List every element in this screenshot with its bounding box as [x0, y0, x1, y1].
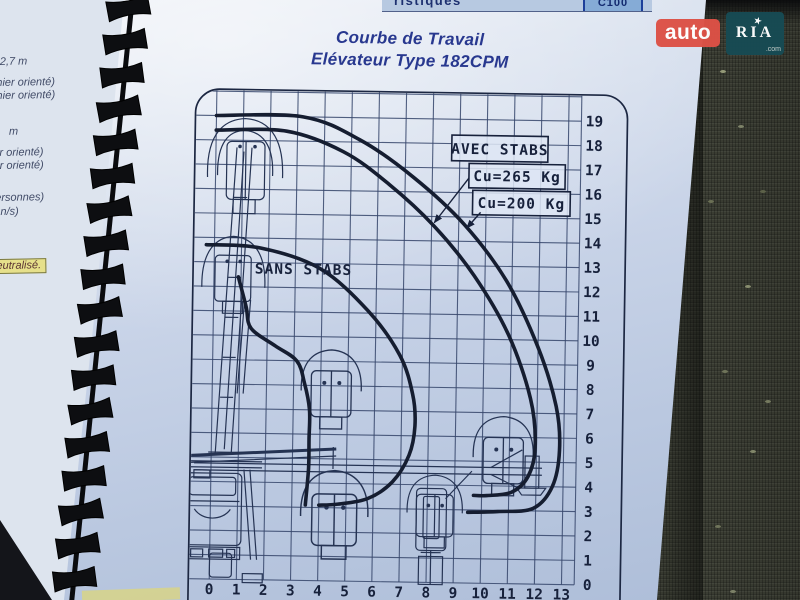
x-tick-label: 10: [471, 586, 489, 600]
left-page-text-fragment: 2,7 m: [0, 56, 27, 67]
grid-line-horizontal: [192, 310, 578, 316]
grid-line-horizontal: [191, 408, 577, 414]
y-tick-label: 4: [584, 480, 593, 496]
x-tick-label: 7: [394, 585, 403, 600]
grid-line-vertical: [426, 90, 434, 583]
turret-drawing: [415, 470, 472, 585]
grid-line-vertical: [574, 92, 582, 585]
grid-line-horizontal: [188, 579, 574, 585]
y-tick-label: 8: [586, 383, 595, 399]
x-tick-label: 4: [313, 584, 322, 600]
y-tick-label: 1: [583, 554, 592, 570]
y-tick-label: 3: [584, 505, 593, 521]
x-tick-label: 6: [367, 585, 376, 600]
basket-top: [207, 118, 284, 214]
highlighted-text-sliver: [82, 587, 180, 600]
grid-line-horizontal: [189, 530, 575, 536]
x-tick-label: 12: [525, 587, 543, 600]
left-page-text-fragment: n/s): [0, 207, 19, 218]
left-page-text-fragment: anier orienté): [0, 77, 55, 89]
y-tick-label: 9: [586, 358, 595, 374]
y-tick-label: 11: [583, 309, 601, 325]
x-tick-label: 2: [259, 583, 268, 599]
y-tick-label: 0: [583, 578, 592, 594]
photographed-manual-page: 2,7 manier orienté)anier orienté)mer ori…: [0, 0, 800, 600]
grid-line-horizontal: [189, 554, 575, 560]
fabric-speck-pattern: [720, 70, 726, 73]
cu-265-label: Cu=265 Kg: [473, 169, 561, 186]
left-page-text-fragment: m: [9, 127, 18, 138]
watermark-tld: .com: [766, 46, 781, 53]
y-tick-label: 16: [584, 187, 602, 203]
stowed-boom-line: [184, 447, 336, 458]
y-tick-label: 10: [582, 334, 600, 350]
left-page-text-fragment: anier orienté): [0, 90, 55, 102]
y-tick-label: 15: [584, 212, 602, 228]
grid-line-horizontal: [194, 237, 580, 243]
grid-line-vertical: [453, 90, 461, 583]
watermark-ria-logo: RIA ★ .com: [726, 12, 784, 55]
grid-line-horizontal: [192, 335, 578, 341]
x-tick-label: 8: [421, 585, 430, 600]
x-tick-label: 0: [205, 582, 214, 598]
x-tick-label: 11: [498, 587, 516, 600]
grid-line-vertical: [209, 86, 217, 579]
grid-line-vertical: [399, 89, 407, 582]
left-page-text-fragment: er orienté): [0, 147, 44, 159]
left-page-text-fragment: er orienté): [0, 160, 44, 172]
grid-line-horizontal: [191, 384, 577, 390]
avec-stabs-label: AVEC STABS: [451, 142, 549, 160]
grid-line-vertical: [372, 89, 380, 582]
watermark-auto-logo: auto: [656, 19, 720, 47]
y-tick-label: 6: [585, 432, 594, 448]
y-tick-label: 17: [585, 163, 603, 179]
grid-line-vertical: [345, 88, 353, 581]
y-tick-label: 18: [585, 139, 603, 155]
x-tick-label: 13: [552, 587, 570, 600]
y-tick-label: 19: [586, 114, 604, 130]
y-tick-label: 13: [583, 261, 601, 277]
y-tick-label: 5: [585, 456, 594, 472]
y-tick-label: 14: [584, 236, 602, 252]
left-page-text-fragment: ersonnes): [0, 192, 44, 204]
cu-200-label: Cu=200 Kg: [477, 196, 565, 213]
x-tick-label: 3: [286, 583, 295, 599]
y-tick-label: 2: [583, 529, 592, 545]
grid-line-vertical: [291, 87, 299, 580]
x-tick-label: 1: [232, 582, 241, 598]
x-tick-label: 5: [340, 584, 349, 600]
y-tick-label: 7: [585, 407, 594, 423]
auto-ria-watermark: auto RIA ★ .com: [656, 12, 784, 55]
sans-stabs-label: SANS STABS: [255, 261, 353, 279]
y-tick-label: 12: [583, 285, 601, 301]
x-tick-label: 9: [448, 586, 457, 600]
left-page-text-fragment: neutralisé.: [0, 258, 46, 274]
